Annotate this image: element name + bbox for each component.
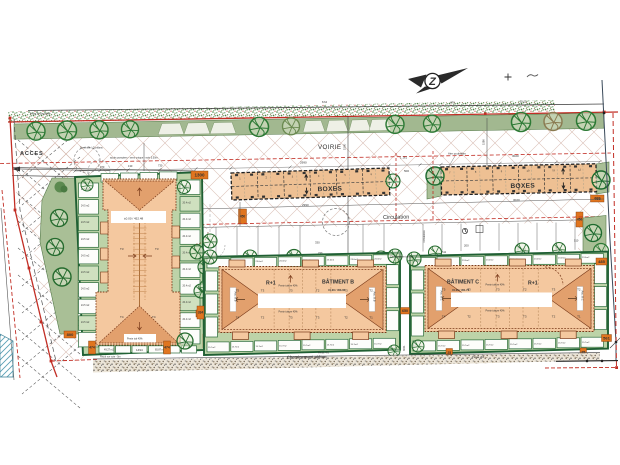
- svg-text:15.7m2: 15.7m2: [256, 346, 264, 348]
- svg-text:49.27 m2: 49.27 m2: [104, 349, 115, 352]
- svg-text:T2: T2: [523, 288, 527, 292]
- svg-text:24.5 m2: 24.5 m2: [81, 222, 90, 224]
- svg-text:20.4 m2: 20.4 m2: [183, 286, 192, 288]
- svg-text:23.0m2: 23.0m2: [279, 260, 287, 262]
- svg-text:T3: T3: [467, 288, 471, 292]
- svg-text:T3: T3: [316, 316, 320, 320]
- svg-text:T3: T3: [289, 289, 293, 293]
- svg-text:334: 334: [198, 311, 204, 315]
- svg-text:Pente toit 40%: Pente toit 40%: [127, 338, 143, 341]
- svg-text:23.0m2: 23.0m2: [374, 258, 382, 260]
- svg-text:130: 130: [128, 164, 133, 168]
- svg-text:270: 270: [100, 165, 105, 169]
- svg-text:T2: T2: [261, 316, 265, 320]
- svg-text:23.0m2: 23.0m2: [582, 257, 590, 259]
- svg-text:561: 561: [603, 335, 610, 340]
- svg-text:Asc. B.B: Asc. B.B: [373, 292, 377, 302]
- svg-text:T4: T4: [236, 316, 240, 320]
- svg-text:23.0m2: 23.0m2: [256, 261, 264, 263]
- svg-text:Z: Z: [428, 76, 437, 88]
- svg-text:15.7m2: 15.7m2: [232, 346, 240, 348]
- svg-text:Asc. B.C: Asc. B.C: [581, 291, 585, 301]
- svg-text:15.7m2: 15.7m2: [486, 344, 494, 346]
- svg-text:T3: T3: [523, 315, 527, 319]
- svg-text:T2: T2: [344, 316, 348, 320]
- svg-text:T3: T3: [289, 316, 293, 320]
- svg-text:Asc. B.B: Asc. B.B: [234, 292, 238, 302]
- svg-text:20.4 m2: 20.4 m2: [183, 203, 192, 205]
- svg-text:T5: T5: [442, 288, 446, 292]
- svg-text:T5: T5: [236, 289, 240, 293]
- svg-text:T4: T4: [442, 315, 446, 319]
- svg-text:15.7m2: 15.7m2: [208, 347, 216, 349]
- svg-text:15.7m2: 15.7m2: [327, 344, 335, 346]
- svg-text:accès pompiers - sens unique -: accès pompiers - sens unique - voie 3.50…: [110, 157, 158, 160]
- svg-text:1494: 1494: [136, 348, 143, 352]
- svg-text:24.5 m2: 24.5 m2: [81, 289, 90, 291]
- svg-text:24.5 m2: 24.5 m2: [81, 322, 90, 324]
- svg-text:T4: T4: [152, 315, 156, 319]
- svg-text:485: 485: [598, 259, 605, 264]
- svg-text:200: 200: [464, 244, 469, 248]
- svg-text:Sens ville / Conflans: Sens ville / Conflans: [80, 147, 103, 150]
- svg-text:R+1: R+1: [528, 281, 538, 287]
- svg-text:T4: T4: [120, 315, 124, 319]
- svg-text:R+1: R+1: [266, 281, 276, 287]
- svg-text:15.7m2: 15.7m2: [374, 343, 382, 345]
- svg-text:BÂTIMENT C: BÂTIMENT C: [447, 279, 479, 286]
- svg-text:23.0m2: 23.0m2: [327, 259, 335, 261]
- svg-text:650: 650: [402, 309, 408, 313]
- svg-text:T2: T2: [552, 315, 556, 319]
- svg-text:15.7m2: 15.7m2: [510, 344, 518, 346]
- svg-text:T2: T2: [369, 289, 373, 293]
- svg-text:Pente 4%: Pente 4%: [318, 352, 330, 355]
- svg-text:23.0m2: 23.0m2: [534, 258, 542, 260]
- svg-text:Pente toiture 40%: Pente toiture 40%: [486, 284, 506, 287]
- svg-text:Circulation: Circulation: [422, 230, 426, 243]
- svg-text:T3: T3: [261, 289, 265, 293]
- svg-text:511: 511: [442, 250, 447, 254]
- svg-text:330: 330: [315, 241, 320, 245]
- svg-text:Aire poubelles: Aire poubelles: [448, 152, 466, 156]
- svg-text:Asc. B.C: Asc. B.C: [440, 291, 444, 301]
- svg-text:T3: T3: [496, 288, 500, 292]
- svg-text:T3: T3: [552, 288, 556, 292]
- svg-text:15.7m2: 15.7m2: [462, 345, 470, 347]
- svg-text:Recul sur voie - 5m: Recul sur voie - 5m: [100, 356, 121, 359]
- svg-text:510: 510: [574, 239, 579, 243]
- svg-text:15.7m2: 15.7m2: [303, 345, 311, 347]
- svg-text:474: 474: [89, 346, 95, 350]
- svg-text:19.00: 19.00: [520, 101, 527, 104]
- svg-text:T3: T3: [155, 247, 159, 251]
- svg-text:465: 465: [594, 196, 602, 201]
- svg-text:15.7m2: 15.7m2: [558, 343, 566, 345]
- svg-text:800: 800: [67, 332, 74, 337]
- svg-text:24.5 m2: 24.5 m2: [81, 206, 90, 208]
- svg-text:Cheminement piéton: Cheminement piéton: [287, 354, 327, 360]
- svg-text:T2: T2: [316, 289, 320, 293]
- svg-text:±0.00 / 452.48: ±0.00 / 452.48: [124, 217, 143, 221]
- svg-text:ACCES: ACCES: [20, 151, 44, 157]
- svg-text:24.5 m2: 24.5 m2: [81, 272, 90, 274]
- svg-text:T3: T3: [120, 247, 124, 251]
- svg-text:15.7m2: 15.7m2: [582, 342, 590, 344]
- svg-text:1300: 1300: [194, 173, 205, 178]
- svg-text:24.5 m2: 24.5 m2: [81, 239, 90, 241]
- svg-text:20.4 m2: 20.4 m2: [183, 236, 192, 238]
- svg-text:BÂTIMENT B: BÂTIMENT B: [322, 279, 354, 286]
- svg-text:3020: 3020: [512, 154, 519, 158]
- svg-text:Cheminement piéton: Cheminement piéton: [390, 256, 414, 259]
- svg-text:T2: T2: [577, 288, 581, 292]
- svg-text:450: 450: [240, 215, 246, 219]
- svg-text:1580: 1580: [482, 139, 486, 145]
- svg-text:23.0m2: 23.0m2: [558, 258, 566, 260]
- svg-text:20.4 m2: 20.4 m2: [183, 219, 192, 221]
- svg-text:23.0m2: 23.0m2: [462, 260, 470, 262]
- svg-text:T1: T1: [577, 315, 581, 319]
- svg-text:±0.00 / 453.00: ±0.00 / 453.00: [328, 288, 346, 292]
- svg-text:VOIRIE: VOIRIE: [318, 144, 341, 151]
- svg-text:2990: 2990: [300, 161, 307, 165]
- svg-text:T3: T3: [496, 315, 500, 319]
- svg-text:Pente toiture 40%: Pente toiture 40%: [279, 285, 299, 288]
- svg-text:15.7m2: 15.7m2: [279, 345, 287, 347]
- svg-text:T3: T3: [344, 289, 348, 293]
- svg-text:470: 470: [450, 101, 455, 105]
- svg-text:15.7m2: 15.7m2: [351, 344, 359, 346]
- svg-text:Pente toiture 40%: Pente toiture 40%: [486, 310, 506, 313]
- svg-text:730: 730: [158, 163, 163, 167]
- svg-text:Pente toiture 40%: Pente toiture 40%: [279, 311, 299, 314]
- svg-text:8.64: 8.64: [322, 100, 328, 104]
- svg-text:20.4 m2: 20.4 m2: [183, 302, 192, 304]
- svg-text:3001: 3001: [403, 345, 406, 351]
- svg-text:474: 474: [164, 346, 170, 350]
- svg-text:BOXES: BOXES: [510, 183, 535, 191]
- svg-text:BOXES: BOXES: [317, 185, 342, 193]
- svg-text:1580: 1580: [343, 143, 347, 150]
- svg-text:20.4 m2: 20.4 m2: [183, 269, 192, 271]
- svg-text:24.5 m2: 24.5 m2: [81, 305, 90, 307]
- svg-text:20.4 m2: 20.4 m2: [183, 319, 192, 321]
- svg-text:24.5 m2: 24.5 m2: [81, 255, 90, 257]
- svg-text:15.7m2: 15.7m2: [534, 343, 542, 345]
- svg-text:15.7m2: 15.7m2: [438, 345, 446, 347]
- svg-text:limite de propriété: limite de propriété: [30, 112, 51, 116]
- svg-text:T2: T2: [467, 315, 471, 319]
- svg-text:1 161: 1 161: [400, 156, 407, 160]
- svg-text:Pente 4%: Pente 4%: [472, 355, 485, 359]
- svg-text:23.0m2: 23.0m2: [486, 259, 494, 261]
- svg-text:500: 500: [404, 169, 409, 173]
- svg-text:T1: T1: [369, 316, 373, 320]
